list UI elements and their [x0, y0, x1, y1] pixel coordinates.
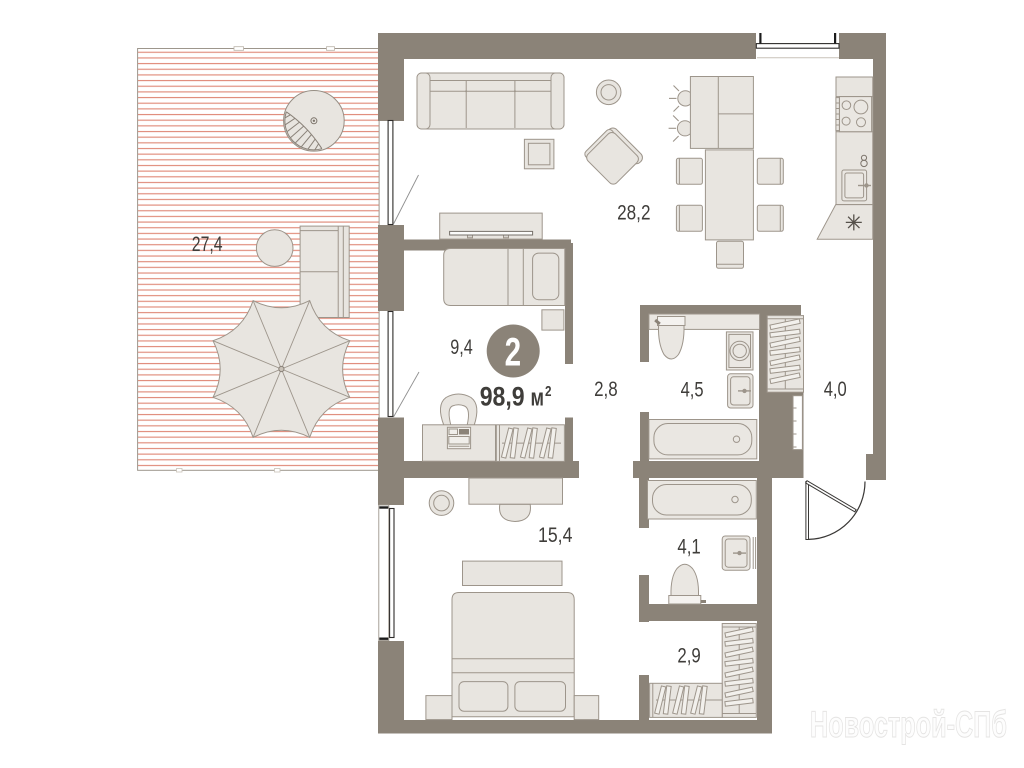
- svg-text:2,9: 2,9: [677, 645, 700, 668]
- svg-text:27,4: 27,4: [192, 233, 223, 256]
- svg-text:9,4: 9,4: [450, 336, 473, 359]
- svg-text:2: 2: [505, 330, 521, 374]
- svg-text:15,4: 15,4: [538, 524, 573, 547]
- svg-text:Новострой-СПб: Новострой-СПб: [810, 704, 1007, 745]
- svg-text:4,0: 4,0: [824, 378, 847, 401]
- svg-text:98,9: 98,9: [480, 382, 525, 412]
- svg-text:м: м: [531, 385, 545, 412]
- svg-text:2: 2: [545, 383, 552, 400]
- svg-text:2,8: 2,8: [594, 378, 618, 401]
- svg-text:28,2: 28,2: [617, 202, 650, 225]
- svg-text:4,1: 4,1: [677, 536, 700, 559]
- svg-text:4,5: 4,5: [681, 379, 704, 402]
